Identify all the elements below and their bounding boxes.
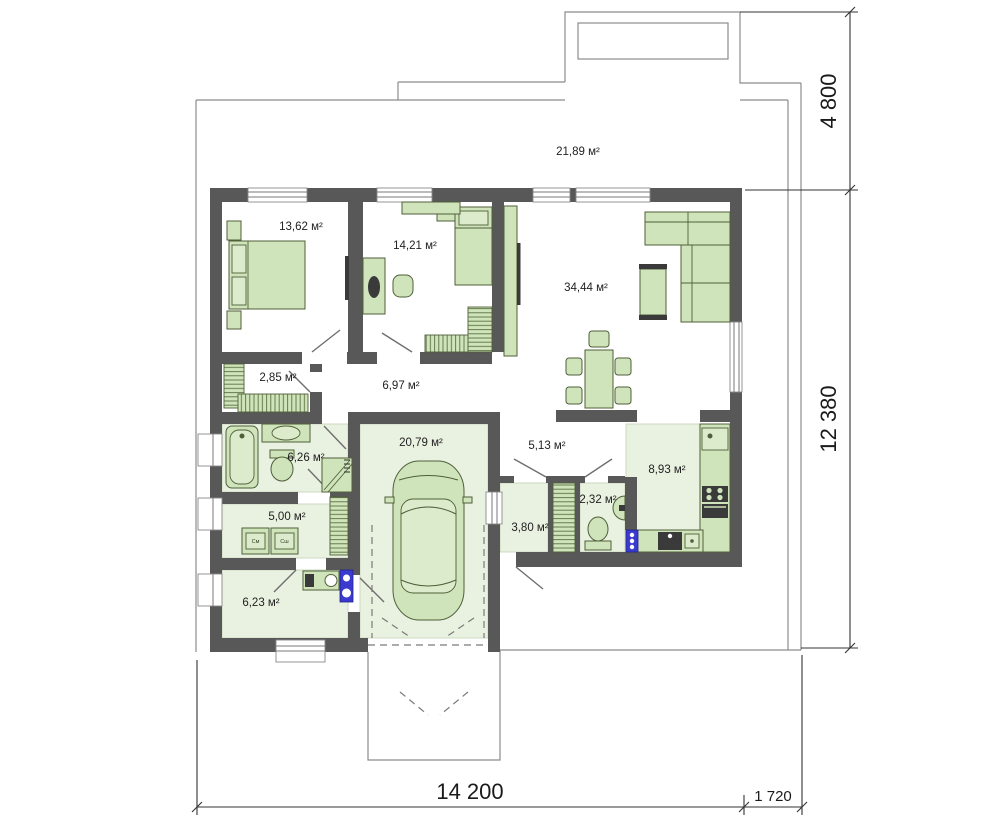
coffee-table (640, 269, 666, 315)
driveway-outline (368, 652, 500, 760)
bedroom2-label: 14,21 м² (393, 240, 437, 252)
door-entry-hall (514, 459, 546, 477)
window-bathroom (198, 434, 222, 466)
tv-bedroom1 (345, 256, 349, 300)
sink (272, 426, 300, 440)
dim-bottom-width: 14 200 (436, 779, 503, 804)
floor-plan-page: См Сш (0, 0, 1000, 822)
entry-wardrobe (553, 483, 575, 552)
dim-right-side: 12 380 (816, 385, 841, 452)
bedroom1-furniture (227, 221, 349, 329)
corridor-label: 5,13 м² (528, 440, 565, 452)
sofa-corner (681, 245, 730, 322)
door-bedroom2 (382, 333, 412, 352)
window-utility-left (198, 574, 222, 606)
oven (702, 504, 728, 518)
bedroom1-label: 13,62 м² (279, 221, 323, 233)
door-wc (585, 459, 612, 477)
car-roof (401, 499, 456, 593)
chair (566, 358, 582, 375)
kitchen-label: 8,93 м² (648, 464, 685, 476)
living-furniture (504, 206, 730, 408)
window-living-right (730, 322, 742, 392)
chair (589, 331, 609, 347)
window-living (533, 188, 570, 202)
floor-plan-drawing: См Сш (0, 0, 1000, 822)
hallway-label: 6,97 м² (382, 380, 419, 392)
living-label: 34,44 м² (564, 282, 608, 294)
wardrobe-cabinet (425, 335, 470, 352)
terrace-label: 21,89 м² (556, 146, 600, 158)
entry-label: 3,80 м² (511, 522, 548, 534)
window-laundry (198, 498, 222, 530)
drying-rack (330, 497, 348, 555)
laundry-label: 5,00 м² (268, 511, 305, 523)
window-bedroom1 (248, 188, 307, 202)
tv-unit (504, 206, 517, 356)
nightstand (227, 311, 241, 329)
wardrobe-label: 2,85 м² (259, 372, 296, 384)
cooktop (702, 486, 728, 502)
hanging-rail (238, 394, 308, 412)
door-entrance (516, 567, 543, 589)
door-bedroom1 (312, 330, 340, 352)
bathroom-label: 6,26 м² (287, 452, 324, 464)
tv-living (517, 243, 521, 305)
mirror (463, 497, 472, 503)
utility-label: 6,23 м² (242, 597, 279, 609)
faucet (240, 434, 245, 439)
dimension-right: 4 800 12 380 (740, 7, 858, 653)
dining-table (585, 350, 613, 408)
desk-chair (393, 275, 413, 297)
wc-label: 2,32 м² (579, 494, 616, 506)
sofa-seat (645, 212, 730, 245)
dryer-label: Сш (280, 539, 289, 545)
dim-bottom-offset: 1 720 (754, 788, 792, 805)
window-bedroom2 (377, 188, 432, 202)
washer-label: См (252, 539, 260, 545)
pergola-inner (578, 23, 728, 59)
chair (615, 387, 631, 404)
window-sill-cabinet (402, 202, 460, 214)
entry-floor (500, 483, 548, 552)
pillow (232, 245, 246, 273)
bedroom2-furniture (363, 204, 492, 352)
monitor (368, 276, 380, 298)
pillow (232, 277, 246, 305)
garage-label: 20,79 м² (399, 437, 443, 449)
chair (615, 358, 631, 375)
pillow (459, 211, 488, 225)
window-utility-bottom (276, 640, 325, 662)
car (385, 461, 472, 620)
mirror (385, 497, 394, 503)
dryer: Сш (271, 528, 298, 554)
garage-hall-opening (486, 492, 502, 524)
wardrobe-cabinet (468, 307, 492, 352)
chair (566, 387, 582, 404)
toilet-tank (585, 541, 611, 550)
terrace-door (576, 188, 650, 202)
washer: См (242, 528, 269, 554)
nightstand (227, 221, 241, 240)
kitchen-sink (702, 428, 728, 450)
toilet-bowl (588, 517, 608, 541)
dim-right-top: 4 800 (816, 73, 841, 128)
